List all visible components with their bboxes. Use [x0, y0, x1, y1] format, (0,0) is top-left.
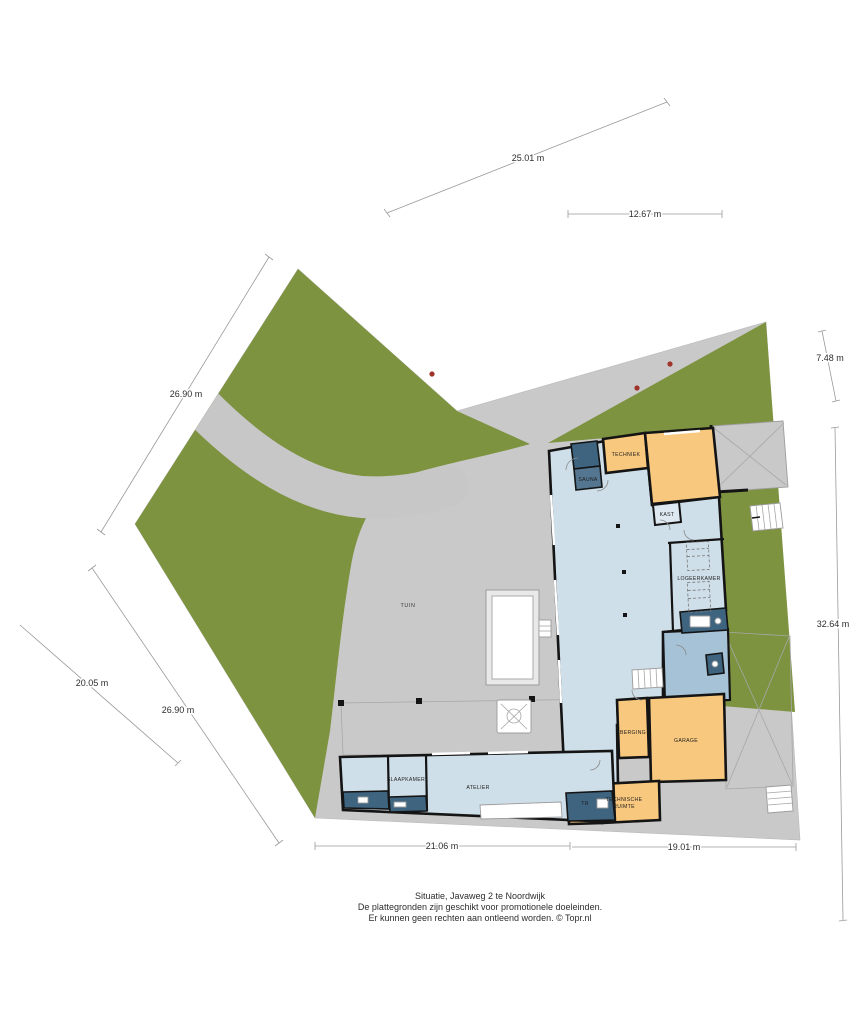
situatie-plan-page: TUIN SAUNA TECHNIEK KAST LOGEERKAMER BER…: [0, 0, 857, 1028]
label-garage: GARAGE: [674, 738, 698, 744]
room-berging: [617, 698, 649, 758]
room-wardrobe: [571, 441, 600, 469]
stairs-upper-icon: [750, 503, 783, 531]
label-sauna: SAUNA: [578, 477, 598, 483]
label-slaapkamer: SLAAPKAMER: [387, 777, 425, 783]
label-kast: KAST: [660, 512, 675, 518]
red-marker: [634, 385, 639, 390]
svg-text:26.90 m: 26.90 m: [170, 389, 203, 399]
room-orange-large: [645, 428, 720, 504]
svg-text:19.01 m: 19.01 m: [668, 842, 701, 852]
caption-line-3: Er kunnen geen rechten aan ontleend word…: [368, 913, 591, 923]
dimension-right-short: 7.48 m: [816, 330, 844, 402]
dimension-top-diagonal: 25.01 m: [384, 98, 670, 217]
svg-text:26.90 m: 26.90 m: [162, 705, 195, 715]
pool-ladder-icon: [539, 620, 551, 637]
dimension-left-lower-a: 20.05 m: [20, 625, 181, 766]
label-tr: TR: [581, 801, 589, 807]
caption-line-1: Situatie, Javaweg 2 te Noordwijk: [415, 891, 546, 901]
stairs-indoor-icon: [632, 668, 663, 689]
label-atelier: ATELIER: [466, 785, 489, 791]
svg-text:21.06 m: 21.06 m: [426, 841, 459, 851]
carport: [711, 421, 788, 493]
jacuzzi-icon: [497, 700, 531, 733]
svg-text:25.01 m: 25.01 m: [512, 153, 545, 163]
svg-text:20.05 m: 20.05 m: [76, 678, 109, 688]
stairs-lower-icon: [766, 785, 793, 813]
dimension-bottom-b: 19.01 m: [572, 842, 796, 852]
label-berging: BERGING: [620, 730, 646, 736]
counter: [480, 802, 562, 819]
label-technische-ruimte-2: RUIMTE: [613, 804, 635, 810]
red-marker: [667, 361, 672, 366]
dimension-right-long: 32.64 m: [817, 427, 850, 921]
label-technische-ruimte-1: TECHNISCHE: [606, 797, 643, 803]
red-marker: [429, 371, 434, 376]
svg-text:12.67 m: 12.67 m: [629, 209, 662, 219]
svg-text:32.64 m: 32.64 m: [817, 619, 850, 629]
label-logeerkamer: LOGEERKAMER: [677, 576, 720, 582]
label-tuin: TUIN: [401, 603, 416, 609]
label-techniek: TECHNIEK: [612, 452, 641, 458]
dimension-top-horizontal: 12.67 m: [568, 209, 722, 219]
caption-line-2: De plattegronden zijn geschikt voor prom…: [358, 902, 602, 912]
floorplan-canvas: TUIN SAUNA TECHNIEK KAST LOGEERKAMER BER…: [0, 0, 857, 1028]
svg-text:7.48 m: 7.48 m: [816, 353, 844, 363]
dimension-bottom-a: 21.06 m: [315, 841, 570, 851]
